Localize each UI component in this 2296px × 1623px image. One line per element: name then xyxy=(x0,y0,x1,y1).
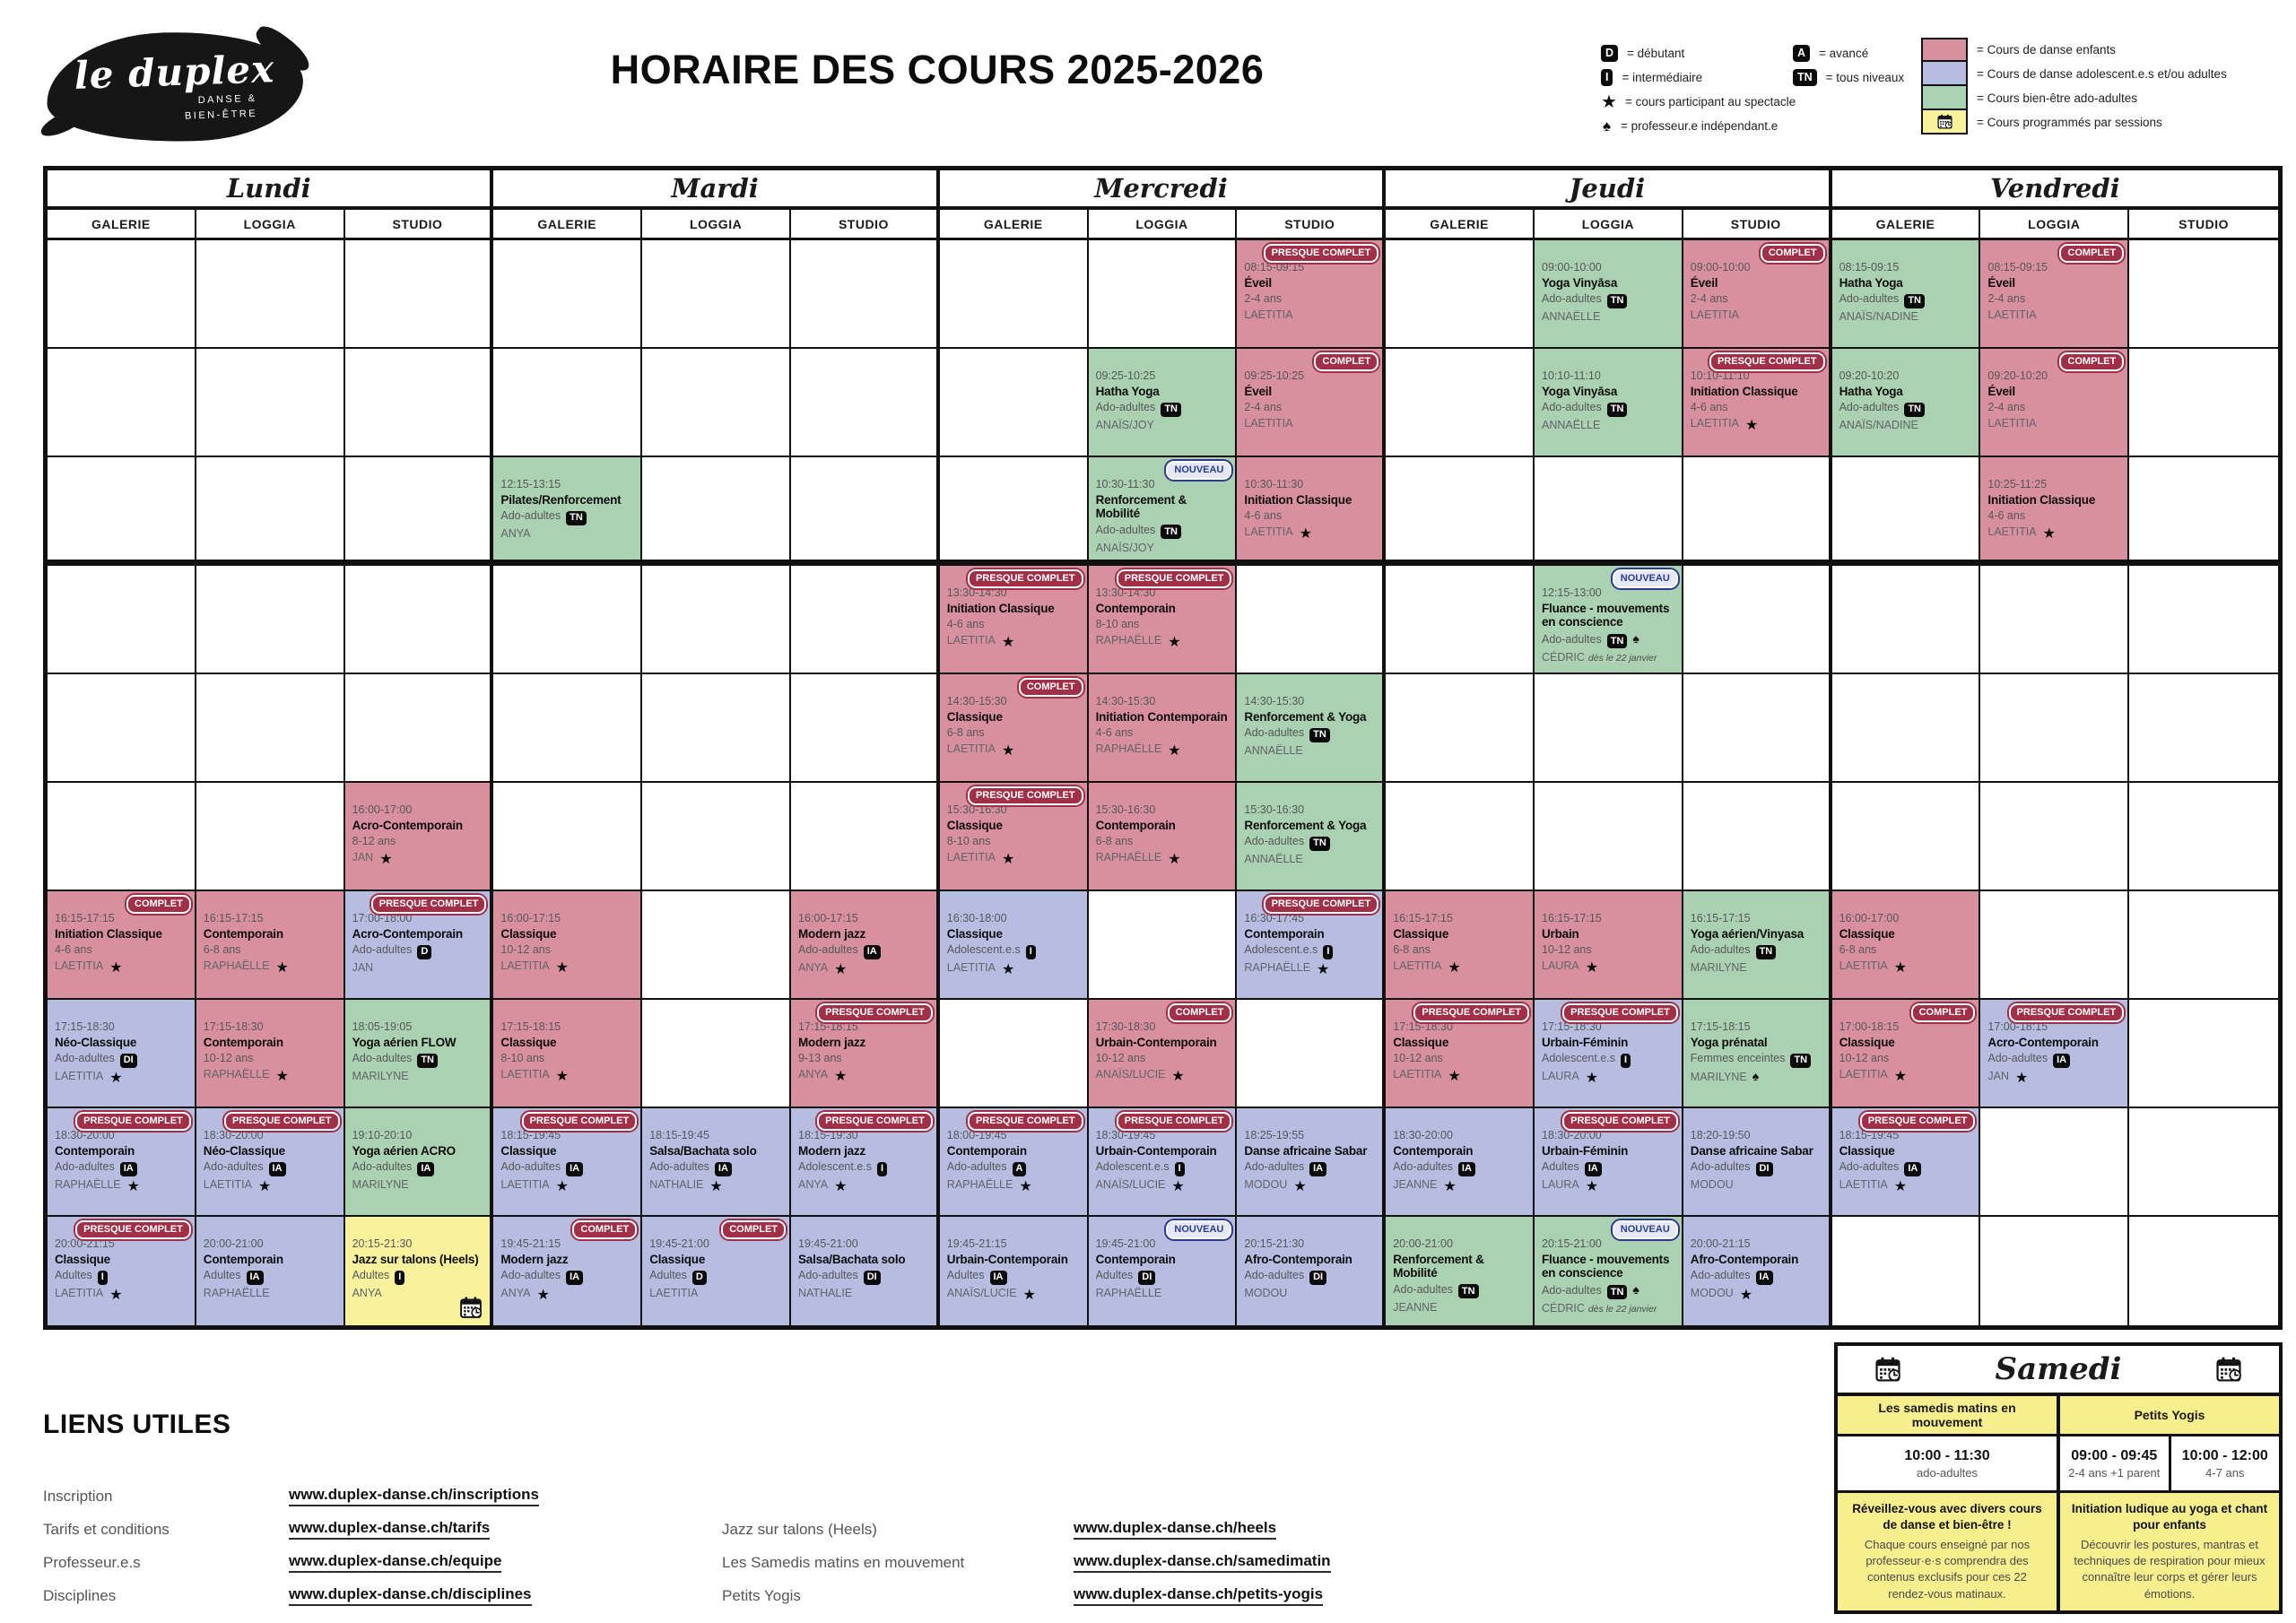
course-title: Danse africaine Sabar xyxy=(1244,1144,1376,1159)
course-title: Urbain-Féminin xyxy=(1542,1036,1675,1050)
course-audience: 4-6 ans xyxy=(55,942,188,958)
logo-wordmark: le duplex xyxy=(46,46,304,99)
course-title: Yoga aérien/Vinyasa xyxy=(1691,927,1822,942)
course-title: Fluance - mouvements en conscience xyxy=(1542,1253,1675,1280)
show-participation-icon: ★ xyxy=(834,963,847,978)
show-participation-icon: ★ xyxy=(1300,527,1312,542)
slot-empty xyxy=(196,566,345,674)
saturday-title: Samedi xyxy=(1996,1351,2122,1387)
course-teacher: MARILYNE♠ xyxy=(1691,1069,1822,1085)
course-time: 09:20-10:20 xyxy=(1839,369,1973,384)
course-title: Hatha Yoga xyxy=(1096,385,1230,399)
course-audience: AdultesDI xyxy=(1096,1268,1230,1285)
show-participation-icon: ★ xyxy=(275,1070,288,1085)
course-audience: Ado-adultesTN xyxy=(1691,942,1822,959)
course-cell: 17:15-18:30Contemporain10-12 ansRAPHAËLL… xyxy=(196,1000,345,1108)
course-teacher: JEANNE★ xyxy=(1393,1177,1526,1193)
course-title: Renforcement & Yoga xyxy=(1244,710,1376,725)
course-teacher: LAETITIA★ xyxy=(55,1069,188,1084)
level-badge: IA xyxy=(269,1162,286,1176)
course-teacher: RAPHAËLLE xyxy=(204,1286,337,1301)
slot-empty xyxy=(1980,891,2129,1000)
level-badge: TN xyxy=(1756,945,1777,959)
course-teacher: LAETITIA xyxy=(1244,416,1376,431)
course-teacher: ANAÏS/JOY xyxy=(1096,418,1230,433)
course-cell: 10:25-11:25Initiation Classique4-6 ansLA… xyxy=(1980,457,2129,566)
slot-empty xyxy=(1535,457,1683,566)
show-participation-icon: ★ xyxy=(1168,636,1180,651)
course-title: Initiation Classique xyxy=(55,927,188,942)
course-time: 20:15-21:30 xyxy=(352,1237,484,1252)
level-badge: TN xyxy=(1309,728,1330,742)
course-audience: Adolescent.e.sI xyxy=(1542,1051,1675,1068)
course-title: Afro-Contemporain xyxy=(1244,1253,1376,1267)
course-audience: Ado-adultesDI xyxy=(798,1268,930,1285)
course-teacher: ANNAËLLE xyxy=(1542,418,1675,433)
course-audience: 4-6 ans xyxy=(947,617,1081,632)
slot-empty xyxy=(48,783,196,891)
course-cell: 18:25-19:55Danse africaine SabarAdo-adul… xyxy=(1237,1108,1386,1217)
course-audience: Adolescent.e.sI xyxy=(947,942,1081,959)
course-audience: Ado-adultesIA xyxy=(1393,1159,1526,1176)
course-audience: Ado-adultesTN♠ xyxy=(1542,631,1675,649)
course-cell: COMPLET16:15-17:15Initiation Classique4-… xyxy=(48,891,196,1000)
slot-empty xyxy=(2129,1217,2278,1325)
slot-empty xyxy=(940,457,1089,566)
status-badge: NOUVEAU xyxy=(1166,461,1231,480)
slot-empty xyxy=(1683,566,1832,674)
status-badge: NOUVEAU xyxy=(1166,1220,1231,1239)
course-audience: AdultesIA xyxy=(947,1268,1081,1285)
course-teacher: ANNAËLLE xyxy=(1244,852,1376,867)
course-cell: COMPLET17:00-18:15Classique10-12 ansLAET… xyxy=(1832,1000,1981,1108)
show-participation-icon: ★ xyxy=(556,1070,569,1085)
course-time: 08:15-09:15 xyxy=(1839,260,1973,275)
room-header: GALERIE xyxy=(1386,210,1535,240)
course-audience: 10-12 ans xyxy=(1839,1051,1973,1066)
course-cell: PRESQUE COMPLET18:15-19:45ClassiqueAdo-a… xyxy=(1832,1108,1981,1217)
saturday-right-title: Petits Yogis xyxy=(2060,1396,2279,1436)
course-audience: 10-12 ans xyxy=(1096,1051,1230,1066)
course-title: Classique xyxy=(1839,1036,1973,1050)
course-teacher: LAETITIA★ xyxy=(1839,959,1973,974)
course-audience: Ado-adultesDI xyxy=(1691,1159,1822,1176)
course-time: 14:30-15:30 xyxy=(1096,694,1230,709)
slot-empty xyxy=(2129,1108,2278,1217)
legend-level-item: I= intermédiaire xyxy=(1601,69,1793,87)
link-inscriptions[interactable]: www.duplex-danse.ch/inscriptions xyxy=(289,1486,539,1506)
course-audience: Adolescent.e.sI xyxy=(798,1159,930,1176)
level-badge: IA xyxy=(2053,1054,2070,1068)
sessions-calendar-icon xyxy=(2214,1355,2243,1384)
room-header: STUDIO xyxy=(345,210,494,240)
course-audience: Ado-adultesTN xyxy=(352,1051,484,1068)
slot-empty xyxy=(791,783,940,891)
course-title: Initiation Classique xyxy=(947,602,1081,616)
show-participation-icon: ★ xyxy=(1002,636,1014,651)
slot-empty xyxy=(1683,783,1832,891)
course-cell: 20:15-21:30Jazz sur talons (Heels)Adulte… xyxy=(345,1217,494,1325)
course-audience: 10-12 ans xyxy=(1393,1051,1526,1066)
saturday-box: Samedi Les samedis matins en mouvement 1… xyxy=(1834,1342,2283,1614)
course-title: Urbain xyxy=(1542,927,1675,942)
course-title: Yoga Vinyāsa xyxy=(1542,276,1675,291)
course-teacher: RAPHAËLLE xyxy=(1096,1286,1230,1301)
course-teacher: ANAÏS/JOY xyxy=(1096,541,1230,556)
course-title: Éveil xyxy=(1691,276,1822,291)
link-row: Professeur.e.swww.duplex-danse.ch/equipe xyxy=(43,1546,539,1579)
status-badge: COMPLET xyxy=(1911,1003,1976,1022)
level-badge: IA xyxy=(120,1162,137,1176)
course-teacher: RAPHAËLLE★ xyxy=(1244,960,1376,976)
course-audience: Ado-adultesIA xyxy=(798,942,930,959)
link-row: Inscriptionwww.duplex-danse.ch/inscripti… xyxy=(43,1480,539,1513)
legend-symbol-item: ♠= professeur.e indépendant.e xyxy=(1601,117,1778,135)
room-header: LOGGIA xyxy=(1089,210,1238,240)
slot-empty xyxy=(1683,674,1832,783)
room-header: STUDIO xyxy=(1683,210,1832,240)
slot-empty xyxy=(1832,566,1981,674)
course-cell: 20:15-21:30Afro-ContemporainAdo-adultesD… xyxy=(1237,1217,1386,1325)
room-header: LOGGIA xyxy=(1535,210,1683,240)
course-cell: 16:15-17:15Yoga aérien/VinyasaAdo-adulte… xyxy=(1683,891,1832,1000)
legend-level-item: TN= tous niveaux xyxy=(1793,69,1904,87)
saturday-left-description: Réveillez-vous avec divers cours de dans… xyxy=(1838,1493,2057,1610)
course-title: Classique xyxy=(500,1144,634,1159)
course-title: Hatha Yoga xyxy=(1839,385,1973,399)
level-badge: IA xyxy=(247,1271,264,1285)
course-cell: 19:10-20:10Yoga aérien ACROAdo-adultesIA… xyxy=(345,1108,494,1217)
course-teacher: RAPHAËLLE★ xyxy=(204,959,337,974)
slot-empty xyxy=(493,566,642,674)
course-audience: 6-8 ans xyxy=(1393,942,1526,958)
link-heels[interactable]: www.duplex-danse.ch/heels xyxy=(1074,1519,1276,1540)
course-time: 19:45-21:15 xyxy=(947,1237,1081,1252)
course-time: 16:00-17:15 xyxy=(798,911,930,926)
course-audience: AdultesD xyxy=(649,1268,783,1285)
link-disciplines[interactable]: www.duplex-danse.ch/disciplines xyxy=(289,1585,532,1606)
link-samedimatin[interactable]: www.duplex-danse.ch/samedimatin xyxy=(1074,1552,1331,1573)
course-teacher: LAETITIA xyxy=(1691,308,1822,323)
course-teacher: LAETITIA xyxy=(1244,308,1376,323)
course-time: 20:00-21:00 xyxy=(204,1237,337,1252)
course-teacher: RAPHAËLLE★ xyxy=(1096,850,1230,865)
status-badge: PRESQUE COMPLET xyxy=(224,1112,340,1131)
link-row: Jazz sur talons (Heels)www.duplex-danse.… xyxy=(722,1513,1331,1546)
course-cell: COMPLET19:45-21:15Modern jazzAdo-adultes… xyxy=(493,1217,642,1325)
course-title: Classique xyxy=(947,927,1081,942)
level-badge: TN xyxy=(1790,1054,1811,1068)
course-time: 20:00-21:15 xyxy=(1691,1237,1822,1252)
slot-empty xyxy=(1386,566,1535,674)
course-teacher: LAETITIA★ xyxy=(1839,1177,1973,1193)
course-teacher: ANNAËLLE xyxy=(1542,309,1675,325)
saturday-header: Samedi xyxy=(1838,1346,2279,1396)
room-header: LOGGIA xyxy=(642,210,791,240)
course-audience: 6-8 ans xyxy=(204,942,337,958)
slot-empty xyxy=(940,1000,1089,1108)
course-title: Classique xyxy=(1839,927,1973,942)
show-participation-icon: ★ xyxy=(1002,963,1014,978)
course-cell: 19:45-21:00Salsa/Bachata soloAdo-adultes… xyxy=(791,1217,940,1325)
show-participation-icon: ★ xyxy=(1745,419,1758,434)
course-audience: Ado-adultesTN xyxy=(1839,291,1973,308)
course-cell: 17:15-18:15Classique8-10 ansLAETITIA★ xyxy=(493,1000,642,1108)
course-audience: AdultesIA xyxy=(204,1268,337,1285)
sessions-calendar-icon xyxy=(1874,1355,1902,1384)
course-teacher: LAETITIA xyxy=(649,1286,783,1301)
course-cell: PRESQUE COMPLET08:15-09:15Éveil2-4 ansLA… xyxy=(1237,240,1386,349)
course-teacher: LAETITIA★ xyxy=(947,633,1081,648)
course-title: Classique xyxy=(1393,927,1526,942)
slot-empty xyxy=(1237,1000,1386,1108)
timetable: LundiMardiMercrediJeudiVendrediGALERIELO… xyxy=(43,166,2283,1330)
course-teacher: RAPHAËLLE★ xyxy=(1096,742,1230,757)
saturday-left-column: Les samedis matins en mouvement 10:00 - … xyxy=(1838,1396,2060,1610)
course-audience: Ado-adultesIA xyxy=(1839,1159,1973,1176)
course-cell: 20:00-21:15Afro-ContemporainAdo-adultesI… xyxy=(1683,1217,1832,1325)
course-time: 18:15-19:45 xyxy=(649,1128,783,1143)
course-teacher: JEANNE xyxy=(1393,1300,1526,1315)
show-participation-icon: ★ xyxy=(1444,1180,1457,1195)
show-participation-icon: ★ xyxy=(834,1070,847,1085)
course-time: 19:10-20:10 xyxy=(352,1128,484,1143)
link-row: Les Samedis matins en mouvementwww.duple… xyxy=(722,1546,1331,1579)
course-title: Contemporain xyxy=(204,1036,337,1050)
legend-level-item: A= avancé xyxy=(1793,45,1868,63)
status-badge: PRESQUE COMPLET xyxy=(522,1112,638,1131)
course-cell: NOUVEAU19:45-21:00ContemporainAdultesDIR… xyxy=(1089,1217,1238,1325)
course-title: Classique xyxy=(1393,1036,1526,1050)
slot-empty xyxy=(1683,457,1832,566)
slot-empty xyxy=(2129,566,2278,674)
level-badge: TN xyxy=(1161,525,1181,539)
course-teacher: ANAÏS/LUCIE★ xyxy=(947,1286,1081,1301)
show-participation-icon: ★ xyxy=(1002,853,1014,868)
course-title: Initiation Classique xyxy=(1987,493,2121,508)
course-time: 16:15-17:15 xyxy=(204,911,337,926)
course-time: 17:15-18:15 xyxy=(1691,1020,1822,1035)
show-participation-icon: ★ xyxy=(1317,963,1329,978)
course-teacher: LAURA★ xyxy=(1542,1069,1675,1084)
course-title: Salsa/Bachata solo xyxy=(649,1144,783,1159)
level-badge: DI xyxy=(1138,1271,1155,1285)
course-title: Renforcement & Yoga xyxy=(1244,819,1376,833)
link-label: Petits Yogis xyxy=(722,1587,1074,1605)
course-audience: AdultesI xyxy=(352,1268,484,1285)
course-teacher: RAPHAËLLE★ xyxy=(55,1177,188,1193)
sessions-calendar-icon xyxy=(1936,113,1953,130)
course-title: Pilates/Renforcement xyxy=(500,493,634,508)
day-header-mardi: Mardi xyxy=(493,170,939,210)
course-cell: 18:05-19:05Yoga aérien FLOWAdo-adultesTN… xyxy=(345,1000,494,1108)
course-cell: 16:30-18:00ClassiqueAdolescent.e.sILAETI… xyxy=(940,891,1089,1000)
slot-empty xyxy=(2129,674,2278,783)
show-participation-icon: ★ xyxy=(1448,1070,1460,1085)
slot-empty xyxy=(196,674,345,783)
course-teacher: LAETITIA★ xyxy=(500,1177,634,1193)
level-badge: TN xyxy=(566,511,587,525)
course-title: Danse africaine Sabar xyxy=(1691,1144,1822,1159)
status-badge: PRESQUE COMPLET xyxy=(1117,1112,1232,1131)
status-badge: PRESQUE COMPLET xyxy=(1562,1112,1678,1131)
course-title: Renforcement & Mobilité xyxy=(1393,1253,1526,1280)
course-audience: Femmes enceintesTN xyxy=(1691,1051,1822,1068)
course-audience: 8-10 ans xyxy=(500,1051,634,1066)
course-teacher: ANYA★ xyxy=(500,1286,634,1301)
room-header: LOGGIA xyxy=(196,210,345,240)
course-teacher: CÉDRICdès le 22 janvier xyxy=(1542,650,1675,666)
useful-links: LIENS UTILES Inscriptionwww.duplex-danse… xyxy=(43,1410,1344,1623)
course-time: 16:15-17:15 xyxy=(1542,911,1675,926)
saturday-right-slot: 10:00 - 12:004-7 ans xyxy=(2169,1436,2280,1490)
slot-empty xyxy=(1386,349,1535,457)
course-teacher: LAETITIA★ xyxy=(947,742,1081,757)
course-audience: Ado-adultesTN xyxy=(1244,725,1376,742)
status-badge: PRESQUE COMPLET xyxy=(1709,352,1825,371)
course-cell: 14:30-15:30Initiation Contemporain4-6 an… xyxy=(1089,674,1238,783)
course-title: Afro-Contemporain xyxy=(1691,1253,1822,1267)
course-audience: AdultesIA xyxy=(1542,1159,1675,1176)
slot-empty xyxy=(642,566,791,674)
status-badge: COMPLET xyxy=(1019,678,1083,697)
course-title: Yoga prénatal xyxy=(1691,1036,1822,1050)
show-participation-icon: ★ xyxy=(109,1072,122,1087)
course-title: Initiation Contemporain xyxy=(1096,710,1230,725)
course-audience: 2-4 ans xyxy=(1244,400,1376,415)
course-title: Classique xyxy=(947,710,1081,725)
category-swatch xyxy=(1921,62,1968,86)
course-cell: NOUVEAU20:15-21:00Fluance - mouvements e… xyxy=(1535,1217,1683,1325)
level-badge: TN xyxy=(1793,69,1817,87)
slot-empty xyxy=(48,349,196,457)
course-audience: 10-12 ans xyxy=(500,942,634,958)
course-audience: Ado-adultesIA xyxy=(204,1159,337,1176)
course-audience: 2-4 ans xyxy=(1987,291,2121,307)
slot-empty xyxy=(642,457,791,566)
course-audience: Ado-adultesTN xyxy=(1542,400,1675,417)
course-audience: 6-8 ans xyxy=(947,725,1081,741)
course-cell: 15:30-16:30Renforcement & YogaAdo-adulte… xyxy=(1237,783,1386,891)
course-cell: PRESQUE COMPLET18:15-19:45ClassiqueAdo-a… xyxy=(493,1108,642,1217)
slot-empty xyxy=(1832,457,1981,566)
saturday-left-title: Les samedis matins en mouvement xyxy=(1838,1396,2057,1436)
link-petits-yogis[interactable]: www.duplex-danse.ch/petits-yogis xyxy=(1074,1585,1323,1606)
logo: le duplex DANSE & BIEN-ÊTRE xyxy=(45,28,305,146)
course-teacher: LAETITIA★ xyxy=(1839,1067,1973,1082)
course-time: 15:30-16:30 xyxy=(1096,803,1230,818)
slot-empty xyxy=(2129,783,2278,891)
course-teacher: LAETITIA★ xyxy=(1987,525,2121,540)
room-header: GALERIE xyxy=(1832,210,1981,240)
link-row: Tarifs et conditionswww.duplex-danse.ch/… xyxy=(43,1513,539,1546)
room-header: STUDIO xyxy=(2129,210,2278,240)
category-swatch xyxy=(1921,110,1968,135)
level-badge: A xyxy=(1793,45,1810,63)
show-participation-icon: ★ xyxy=(1448,961,1460,976)
course-time: 20:15-21:30 xyxy=(1244,1237,1376,1252)
course-audience: 4-6 ans xyxy=(1244,508,1376,524)
course-title: Salsa/Bachata solo xyxy=(798,1253,930,1267)
course-time: 10:25-11:25 xyxy=(1987,477,2121,492)
show-participation-icon: ★ xyxy=(258,1180,271,1195)
level-badge: IA xyxy=(417,1162,434,1176)
course-cell: 19:45-21:15Urbain-ContemporainAdultesIAA… xyxy=(940,1217,1089,1325)
level-badge: I xyxy=(1175,1162,1185,1176)
level-badge: I xyxy=(98,1271,108,1285)
show-participation-icon: ★ xyxy=(1023,1289,1036,1304)
course-cell: PRESQUE COMPLET10:10-11:10Initiation Cla… xyxy=(1683,349,1832,457)
status-badge: PRESQUE COMPLET xyxy=(1860,1112,1976,1131)
show-participation-icon: ★ xyxy=(1171,1070,1184,1085)
saturday-right-column: Petits Yogis 09:00 - 09:452-4 ans +1 par… xyxy=(2060,1396,2279,1610)
show-participation-icon: ★ xyxy=(2043,527,2056,542)
level-badge: TN xyxy=(1458,1284,1479,1298)
course-audience: Ado-adultesIA xyxy=(55,1159,188,1176)
slot-empty xyxy=(1832,674,1981,783)
course-title: Néo-Classique xyxy=(55,1036,188,1050)
level-badge: DI xyxy=(864,1271,881,1285)
link-equipe[interactable]: www.duplex-danse.ch/equipe xyxy=(289,1552,501,1573)
level-badge: TN xyxy=(1161,403,1181,417)
show-participation-icon: ★ xyxy=(1586,961,1598,976)
level-badge: I xyxy=(1026,945,1036,959)
course-time: 16:15-17:15 xyxy=(1691,911,1822,926)
independent-teacher-icon: ♠ xyxy=(1632,1282,1639,1297)
course-title: Contemporain xyxy=(947,1144,1081,1159)
slot-empty xyxy=(196,349,345,457)
course-time: 17:15-18:30 xyxy=(204,1020,337,1035)
course-audience: 9-13 ans xyxy=(798,1051,930,1066)
course-cell: 16:00-17:00Acro-Contemporain8-12 ansJAN★ xyxy=(345,783,494,891)
course-cell: 20:00-21:00Renforcement & MobilitéAdo-ad… xyxy=(1386,1217,1535,1325)
course-title: Éveil xyxy=(1244,385,1376,399)
level-badge: D xyxy=(692,1271,707,1285)
links-column-1: Inscriptionwww.duplex-danse.ch/inscripti… xyxy=(43,1480,539,1612)
course-teacher: ANAÏS/LUCIE★ xyxy=(1096,1177,1230,1193)
course-time: 16:00-17:00 xyxy=(1839,911,1973,926)
link-tarifs[interactable]: www.duplex-danse.ch/tarifs xyxy=(289,1519,490,1540)
sessions-calendar-icon xyxy=(2214,1355,2243,1384)
course-cell: PRESQUE COMPLET18:30-20:00ContemporainAd… xyxy=(48,1108,196,1217)
course-cell: 14:30-15:30Renforcement & YogaAdo-adulte… xyxy=(1237,674,1386,783)
course-cell: 18:30-20:00ContemporainAdo-adultesIAJEAN… xyxy=(1386,1108,1535,1217)
status-badge: PRESQUE COMPLET xyxy=(968,786,1083,805)
course-title: Néo-Classique xyxy=(204,1144,337,1159)
show-participation-icon: ★ xyxy=(834,1180,847,1195)
course-title: Hatha Yoga xyxy=(1839,276,1973,291)
slot-empty xyxy=(2129,891,2278,1000)
link-row: Petits Yogiswww.duplex-danse.ch/petits-y… xyxy=(722,1579,1331,1612)
status-badge: COMPLET xyxy=(126,895,191,914)
show-participation-icon: ★ xyxy=(1168,744,1180,759)
slot-empty xyxy=(196,457,345,566)
slot-empty xyxy=(493,783,642,891)
course-time: 20:00-21:00 xyxy=(1393,1237,1526,1252)
course-cell: PRESQUE COMPLET17:15-18:30Urbain-Féminin… xyxy=(1535,1000,1683,1108)
course-title: Classique xyxy=(649,1253,783,1267)
course-time: 18:30-20:00 xyxy=(1393,1128,1526,1143)
legend-category-item: = Cours programmés par sessions xyxy=(1921,110,2227,135)
course-audience: 10-12 ans xyxy=(1542,942,1675,958)
slot-empty xyxy=(791,457,940,566)
slot-empty xyxy=(1089,891,1238,1000)
level-badge: DI xyxy=(120,1054,137,1068)
link-label: Inscription xyxy=(43,1488,289,1506)
show-participation-icon: ★ xyxy=(1894,961,1907,976)
slot-empty xyxy=(1535,674,1683,783)
course-audience: Ado-adultesTN xyxy=(1096,523,1230,540)
